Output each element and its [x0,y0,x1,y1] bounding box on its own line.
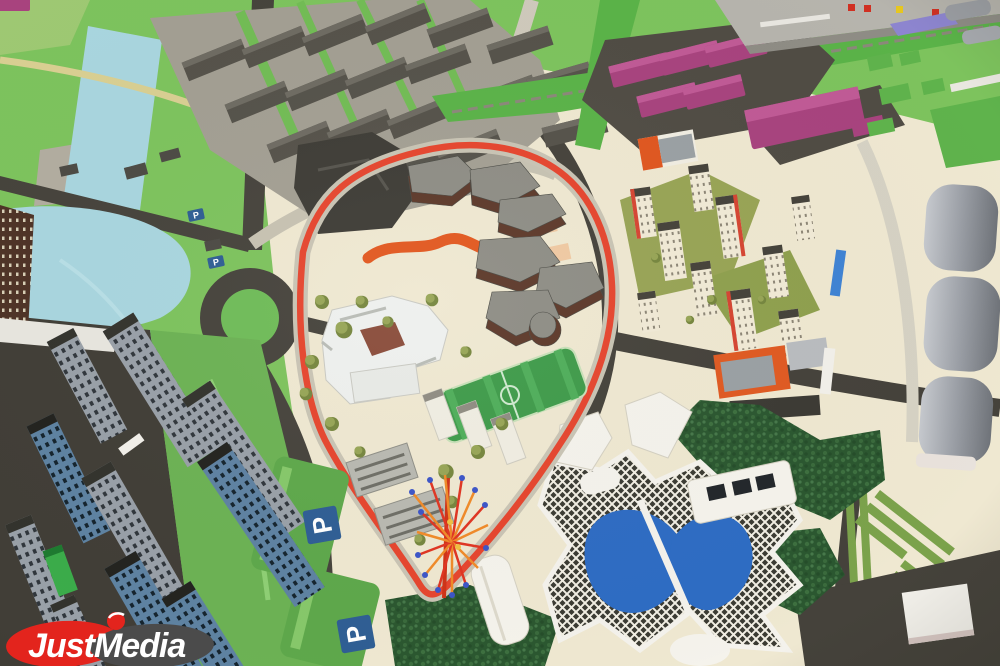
city-model-canvas: P P P P JustMedia [0,0,1000,666]
logo-text: JustMedia [28,627,185,665]
city-model-photo: P P P P JustMedia [0,0,1000,666]
photo-vignette [0,0,1000,666]
